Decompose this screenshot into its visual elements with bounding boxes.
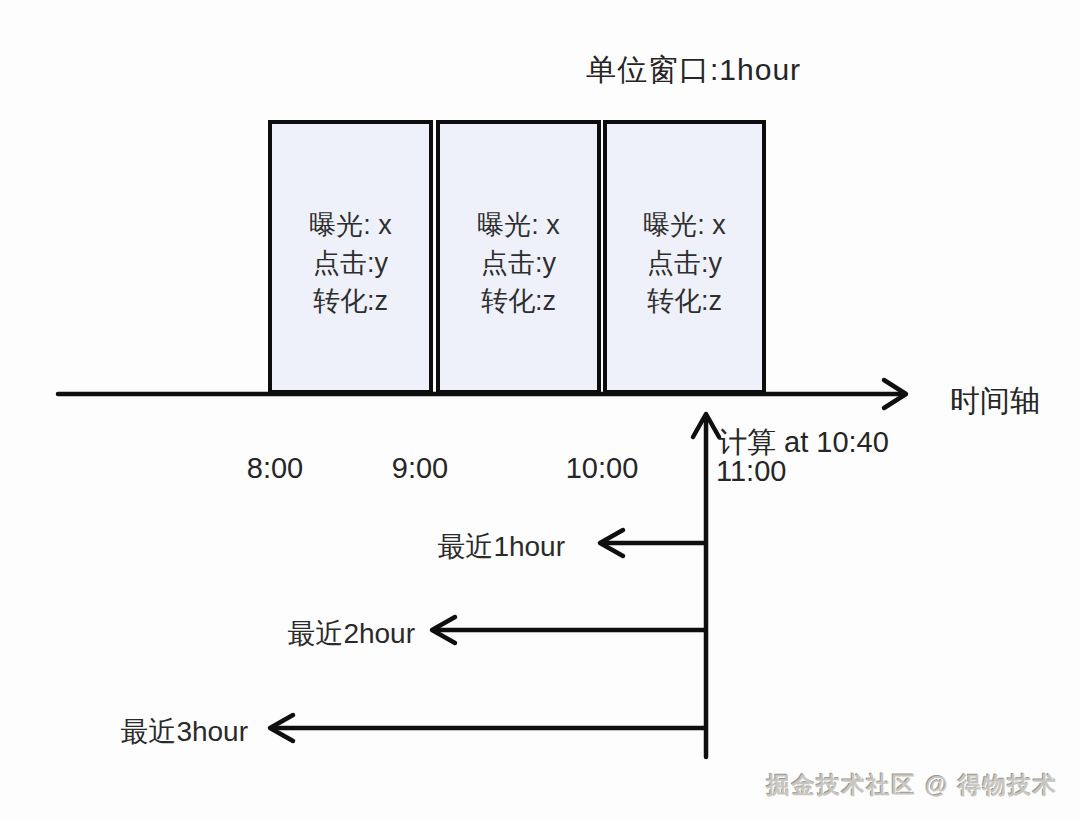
tick-10-00: 10:00 [557,452,647,485]
watermark-text: 掘金技术社区 @ 得物技术 [767,770,1058,801]
range-label-3hour: 最近3hour [120,713,248,751]
range-arrow-3hour [270,715,705,741]
range-label-1hour: 最近1hour [437,528,565,566]
range-arrow-2hour [432,617,705,643]
diagram-canvas: 单位窗口:1hour 曝光: x 点击:y 转化:z 曝光: x 点击:y 转化… [0,0,1080,822]
range-arrow-1hour [600,530,705,556]
range-label-2hour: 最近2hour [287,615,415,653]
diagram-arrows [0,0,1080,822]
tick-9-00: 9:00 [375,452,465,485]
tick-8-00: 8:00 [230,452,320,485]
time-axis-arrow [58,380,906,408]
calc-annotation: 计算 at 10:40 [718,423,889,463]
time-axis-label: 时间轴 [950,381,1040,422]
